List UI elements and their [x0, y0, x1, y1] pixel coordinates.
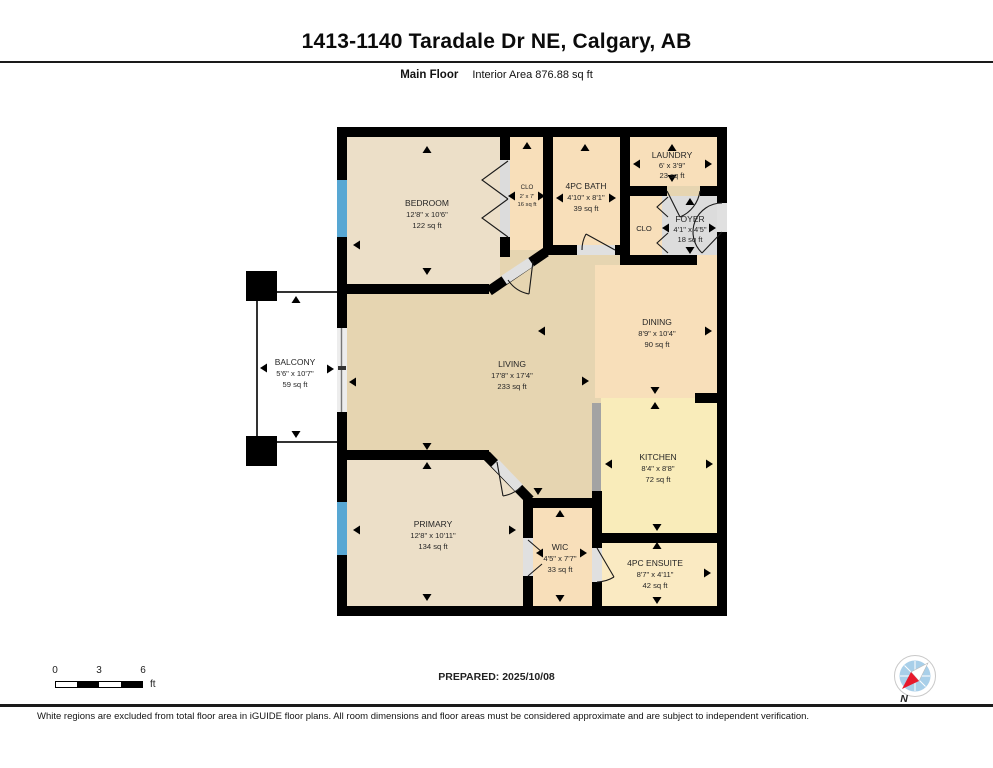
room-primary-name: PRIMARY [414, 519, 453, 529]
room-foyer-closet-name: CLO [636, 224, 652, 233]
balcony-pillar [246, 436, 277, 466]
room-dining-name: DINING [642, 317, 672, 327]
room-foyer-dims: 4'1" x 4'5" [673, 225, 707, 234]
room-wic-name: WIC [552, 542, 569, 552]
room-bedroom-closet-name: CLO [521, 184, 534, 191]
room-foyer-area: 18 sq ft [678, 235, 704, 244]
patio-door [337, 328, 347, 412]
room-bedroom-name: BEDROOM [405, 198, 449, 208]
room-bath-name: 4PC BATH [566, 181, 607, 191]
room-ensuite-dims: 8'7" x 4'11" [637, 570, 674, 579]
footer-disclaimer: White regions are excluded from total fl… [37, 711, 963, 722]
window-primary [337, 502, 347, 555]
room-living-area: 233 sq ft [497, 382, 527, 391]
room-laundry-dims: 6' x 3'9" [659, 161, 686, 170]
room-bath-floor [553, 137, 620, 245]
room-bedroom-dims: 12'8" x 10'6" [406, 210, 448, 219]
room-wic-dims: 4'5" x 7'7" [543, 554, 577, 563]
room-primary-dims: 12'8" x 10'11" [410, 531, 456, 540]
room-dining-area: 90 sq ft [645, 340, 671, 349]
room-ensuite-name: 4PC ENSUITE [627, 558, 683, 568]
room-balcony-dims: 5'6" x 10'7" [276, 369, 314, 378]
room-ensuite-area: 42 sq ft [643, 581, 669, 590]
floorplan-drawing: BEDROOM 12'8" x 10'6" 122 sq ft CLO 2' x… [0, 0, 993, 768]
room-living-dims: 17'8" x 17'4" [491, 371, 533, 380]
room-bath-dims: 4'10" x 8'1" [567, 193, 605, 202]
room-bedroom-closet-dims: 2' x 7' [520, 194, 535, 200]
room-laundry-area: 23 sq ft [660, 171, 686, 180]
room-primary-area: 134 sq ft [418, 542, 448, 551]
room-bedroom-closet-area: 16 sq ft [517, 202, 536, 208]
foyer-dining-opening [697, 255, 717, 265]
room-bath-area: 39 sq ft [574, 204, 600, 213]
room-bedroom-area: 122 sq ft [412, 221, 442, 230]
room-living-name: LIVING [498, 359, 526, 369]
floorplan-page: { "header": { "title": "1413-1140 Tarada… [0, 0, 993, 768]
kitchen-counter [592, 403, 601, 491]
room-wic-area: 33 sq ft [548, 565, 574, 574]
footer-divider [0, 704, 993, 707]
room-kitchen-area: 72 sq ft [646, 475, 672, 484]
room-balcony-area: 59 sq ft [283, 380, 309, 389]
prepared-date: PREPARED: 2025/10/08 [0, 671, 993, 683]
balcony-pillar [246, 271, 277, 301]
room-foyer-name: FOYER [675, 214, 704, 224]
room-laundry-name: LAUNDRY [652, 150, 693, 160]
room-balcony-name: BALCONY [275, 357, 316, 367]
room-kitchen-dims: 8'4" x 8'8" [641, 464, 675, 473]
room-kitchen-name: KITCHEN [639, 452, 676, 462]
room-dining-dims: 8'9" x 10'4" [638, 329, 676, 338]
window-bedroom [337, 180, 347, 237]
